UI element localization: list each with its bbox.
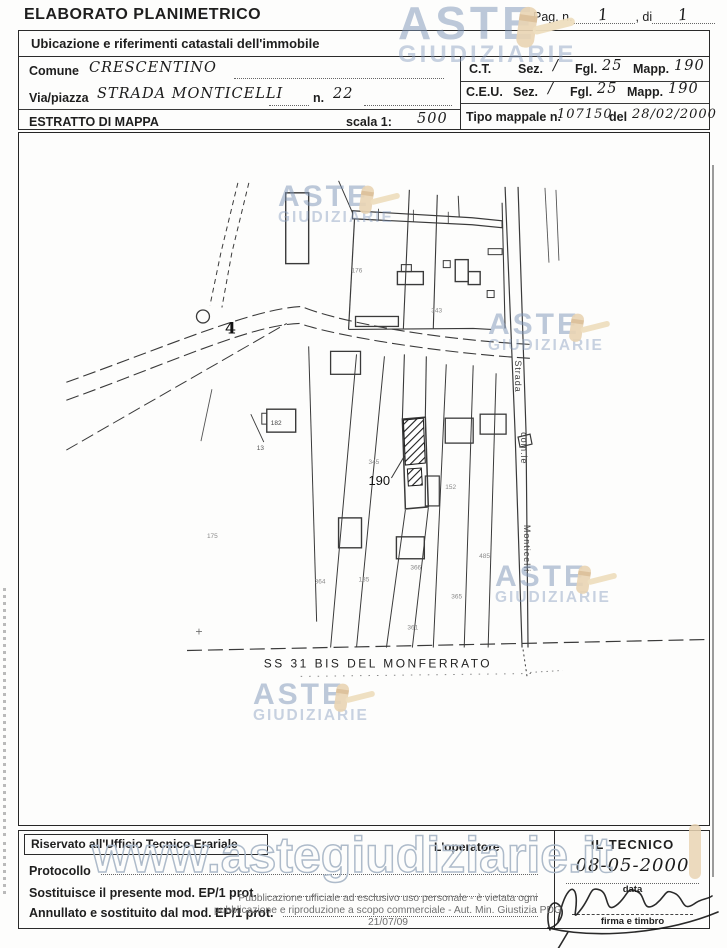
disclaimer-line-2: pubblicazione e riproduzione a scopo com… — [208, 905, 568, 929]
tecnico-heading: IL TECNICO — [554, 837, 711, 852]
parcel-190-label: 190 — [368, 473, 390, 488]
ct-mapp-value: 190 — [674, 58, 705, 74]
road-fork-line — [66, 323, 286, 450]
via-label: Via/piazza — [29, 91, 89, 105]
building-mid-a — [445, 418, 473, 443]
pag-value-slot: 1 — [573, 8, 636, 24]
form-right-cell: C.T. Sez. / Fgl. 25 Mapp. 190 C.E.U. Sez… — [460, 57, 709, 129]
ceu-mapp-label: Mapp. — [627, 85, 663, 99]
n-label: n. — [313, 91, 324, 105]
ceu-sez-label: Sez. — [513, 85, 538, 99]
margin-print-marks — [3, 588, 6, 838]
road-right-tail — [523, 650, 527, 677]
location-heading-box: Ubicazione e riferimenti catastali dell'… — [18, 30, 710, 57]
parcel190-hatched-square — [407, 468, 422, 486]
comune-dots — [234, 76, 444, 79]
building-small-square-right — [487, 291, 494, 298]
ct-fgl-label: Fgl. — [575, 62, 597, 76]
faint-parcel-number: 366 — [410, 565, 421, 572]
faint-parcel-number: 185 — [359, 577, 370, 584]
upper-boundary-to-top — [339, 181, 353, 213]
upper-bottom-boundary — [349, 328, 492, 329]
tipo-label: Tipo mappale n. — [466, 110, 561, 124]
tipo-del-value: 28/02/2000 — [632, 107, 717, 122]
road-right-line-1 — [505, 187, 522, 648]
ct-sez-label: Sez. — [518, 62, 543, 76]
ceu-mapp-value: 190 — [668, 81, 699, 97]
catastal-form-table: Comune CRESCENTINO Via/piazza STRADA MON… — [18, 56, 710, 130]
pag-label: Pag. n. — [533, 10, 573, 24]
ceu-fgl-label: Fgl. — [570, 85, 592, 99]
parcel190-leader-line — [391, 456, 404, 478]
junction-number: 4 — [225, 318, 236, 337]
footpath-dashed-2 — [222, 183, 249, 308]
disclaimer-line-1: Pubblicazione ufficiale ad esclusivo uso… — [208, 893, 568, 905]
upper-long-building — [353, 211, 503, 228]
map-extract-frame: 4 190 182 13 Strada com.le Monticelli SS… — [18, 132, 710, 826]
gavel-icon — [689, 824, 701, 879]
road-right-label-monticelli: Monticelli — [522, 525, 532, 572]
road-upper-top-line — [66, 306, 530, 382]
faint-parcel-number: 175 — [207, 533, 218, 540]
estratto-label: ESTRATTO DI MAPPA — [29, 115, 159, 129]
cadastral-map-drawing: 4 190 182 13 Strada com.le Monticelli SS… — [19, 133, 708, 824]
boundary-short-diagonal — [201, 389, 212, 441]
scala-value: 500 — [417, 111, 448, 127]
building-right-pair-a — [455, 260, 468, 282]
faint-parcel-number: 485 — [479, 553, 490, 560]
left-row-divider — [19, 109, 460, 110]
strip-line-3 — [357, 356, 385, 647]
form-left-cell: Comune CRESCENTINO Via/piazza STRADA MON… — [19, 57, 460, 129]
comune-value: CRESCENTINO — [89, 60, 217, 76]
road-bottom-dots — [301, 673, 538, 676]
strip-right-of-road-2 — [556, 190, 559, 261]
strip-line-2 — [331, 354, 357, 647]
right-row-divider-2 — [461, 103, 709, 104]
protocollo-row: Protocollo — [29, 864, 546, 878]
upper-vertical-3 — [502, 203, 505, 329]
parcel190-upper-right — [425, 356, 426, 417]
publication-disclaimer: Pubblicazione ufficiale ad esclusivo uso… — [208, 893, 568, 928]
comune-label: Comune — [29, 64, 79, 78]
road-bottom-dots-2 — [530, 670, 563, 672]
n-dots — [364, 103, 452, 106]
faint-parcel-number: 152 — [445, 484, 456, 491]
pag-value: 1 — [598, 7, 611, 22]
upper-vertical-1 — [403, 190, 409, 329]
faint-parcel-number: 176 — [352, 268, 363, 275]
house-182-notch — [262, 413, 267, 424]
building-narrow-tall — [286, 193, 309, 264]
di-value-slot: 1 — [652, 8, 715, 24]
via-dots — [269, 103, 309, 106]
ct-mapp-label: Mapp. — [633, 62, 669, 76]
building-inner-1 — [397, 272, 423, 285]
via-value: STRADA MONTICELLI — [97, 86, 283, 102]
reserved-office-heading: Riservato all'Ufficio Tecnico Erariale — [24, 834, 268, 855]
building-mid-b — [480, 414, 506, 434]
ceu-fgl-value: 25 — [597, 81, 617, 97]
house-182-label: 182 — [271, 420, 282, 427]
upper-vertical-stub — [458, 196, 459, 217]
road-right-label-strada: Strada — [513, 360, 523, 392]
road-bottom-label: SS 31 BIS DEL MONFERRATO — [264, 656, 492, 670]
building-thin-right — [488, 249, 502, 255]
page-title: ELABORATO PLANIMETRICO — [24, 6, 261, 24]
building-right-pair-b — [468, 272, 480, 285]
n-value: 22 — [333, 86, 353, 102]
ct-label: C.T. — [469, 62, 491, 76]
faint-parcel-number: 361 — [407, 625, 418, 632]
di-label: , di — [635, 10, 652, 24]
di-value: 1 — [677, 7, 690, 22]
strip-right-of-road-1 — [545, 188, 549, 263]
scanned-cadastral-document: ELABORATO PLANIMETRICO Pag. n. 1 , di 1 … — [0, 0, 727, 948]
faint-parcel-number: 343 — [431, 307, 442, 314]
ct-fgl-value: 25 — [602, 58, 622, 74]
ceu-sez-value: / — [548, 81, 554, 97]
page-number-row: Pag. n. 1 , di 1 — [533, 8, 715, 24]
scan-edge-artifact — [712, 165, 714, 877]
margin-print-marks — [3, 842, 6, 897]
faint-parcel-number: 345 — [368, 459, 379, 466]
road-right-label-comle: com.le — [519, 432, 529, 464]
junction-marker — [196, 310, 209, 323]
tipo-del-label: del — [609, 110, 627, 124]
ct-sez-value: / — [553, 58, 559, 74]
building-tick-square — [443, 261, 450, 268]
faint-parcel-number: 364 — [315, 579, 326, 586]
strip-line-7 — [464, 365, 473, 647]
protocollo-label: Protocollo — [29, 864, 91, 878]
protocollo-dots — [101, 872, 538, 875]
parcel190-upper-left — [402, 354, 404, 419]
faint-parcel-number: 365 — [451, 594, 462, 601]
strip-line-4 — [386, 510, 405, 648]
ceu-label: C.E.U. — [466, 85, 503, 99]
operator-label: L'operatore — [434, 840, 500, 854]
flag-13-label: 13 — [257, 445, 265, 452]
parcel190-hatched-top — [403, 418, 425, 465]
road-bottom-line — [187, 640, 705, 651]
road-upper-bottom-line — [66, 323, 530, 400]
building-thin-low — [356, 316, 399, 326]
scala-label: scala 1: — [346, 115, 392, 129]
tipo-value: 107150 — [557, 107, 613, 122]
